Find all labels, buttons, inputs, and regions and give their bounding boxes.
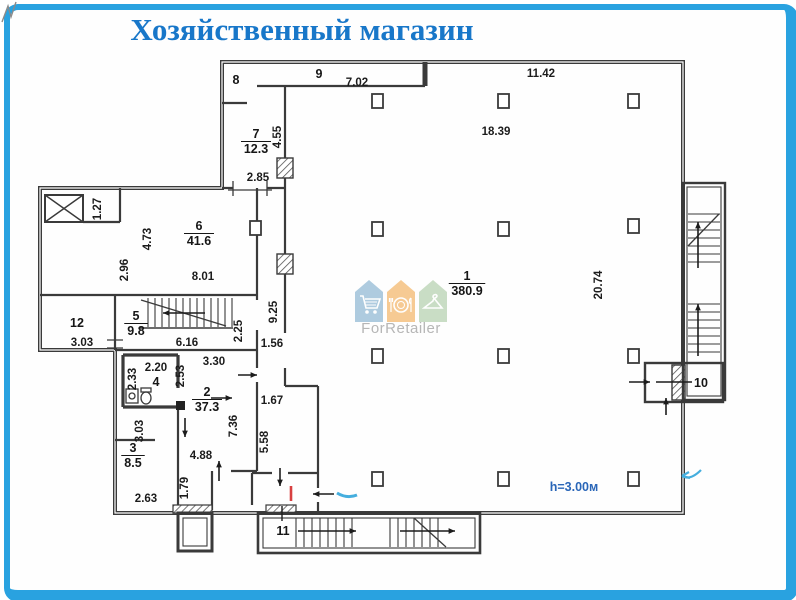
dimension-label: 4.73 <box>142 228 154 250</box>
dining-icon <box>387 280 415 322</box>
dimension-label: 1.67 <box>261 395 283 407</box>
direction-arrows <box>163 222 701 534</box>
direction-arrow <box>182 418 188 437</box>
dimension-label: 4.55 <box>272 125 284 148</box>
room-number: 8 <box>233 73 240 87</box>
dimension-label: 1.79 <box>179 477 191 499</box>
room-area: 9.8 <box>127 324 144 338</box>
room-area: 41.6 <box>187 234 211 248</box>
dimension-label: 3.30 <box>203 356 225 368</box>
dimension-label: 2.96 <box>119 259 131 281</box>
direction-arrow <box>313 491 334 497</box>
dimension-label: 1.27 <box>92 198 104 220</box>
direction-arrow <box>400 528 455 534</box>
staircase-right <box>683 183 725 400</box>
dimension-label: 2.85 <box>247 172 270 184</box>
dimension-label: 20.74 <box>593 270 605 299</box>
dimension-label: 5.58 <box>259 430 271 453</box>
pencil-scribble <box>2 2 16 22</box>
column <box>372 472 383 486</box>
cart-icon <box>355 280 383 322</box>
dimension-label: 7.36 <box>228 415 240 437</box>
dimension-label: 3.03 <box>71 337 93 349</box>
room-number: 5 <box>133 309 140 323</box>
room-area: 380.9 <box>451 284 482 298</box>
room-number: 9 <box>316 67 323 81</box>
column <box>372 94 383 108</box>
dimension-label: 18.39 <box>482 126 511 138</box>
page-title: Хозяйственный магазин <box>130 12 473 47</box>
direction-arrow <box>163 310 205 316</box>
floor-plan-svg: Хозяйственный магазин <box>0 0 796 600</box>
direction-arrow <box>277 468 283 486</box>
room-area: 12.3 <box>244 142 268 156</box>
column <box>250 221 261 235</box>
entrance-porch <box>178 513 212 551</box>
stair-treads <box>148 214 720 547</box>
room-area: 37.3 <box>195 400 219 414</box>
dimension-label: 6.16 <box>176 337 198 349</box>
leader-lines <box>282 382 692 521</box>
room-number: 10 <box>694 376 708 390</box>
room-number: 12 <box>70 316 84 330</box>
dimension-label: 7.02 <box>346 77 368 89</box>
column <box>628 472 639 486</box>
dimension-label: 3.03 <box>134 420 146 442</box>
column <box>372 222 383 236</box>
direction-arrow <box>298 528 356 534</box>
column <box>372 349 383 363</box>
direction-arrow <box>663 398 669 415</box>
dimension-label: 2.63 <box>135 493 157 505</box>
column <box>498 349 509 363</box>
dimension-label: 4.88 <box>190 450 213 462</box>
column <box>628 219 639 233</box>
column <box>498 222 509 236</box>
room-number: 2 <box>204 385 211 399</box>
dimension-label: 8.01 <box>192 271 215 283</box>
forretailer-watermark: ForRetailer <box>355 280 447 337</box>
ceiling-height-note: h=3.00м <box>550 480 599 494</box>
direction-arrow <box>238 372 257 378</box>
direction-arrow <box>216 461 222 481</box>
hanger-icon <box>419 280 447 322</box>
staircase-room5 <box>140 300 233 328</box>
direction-arrow <box>629 379 650 385</box>
room-area: 8.5 <box>124 456 141 470</box>
wall-piers <box>277 158 685 400</box>
direction-arrow <box>695 222 701 268</box>
room-number: 11 <box>276 524 289 538</box>
column <box>628 94 639 108</box>
dimension-label: 2.33 <box>127 368 139 390</box>
brand-text: ForRetailer <box>361 320 441 337</box>
shaft-x-box <box>45 195 83 222</box>
column <box>628 349 639 363</box>
room-number: 1 <box>464 269 471 283</box>
dimension-label: 2.20 <box>145 362 167 374</box>
dimension-label: 9.25 <box>268 300 280 323</box>
room-number: 7 <box>253 127 260 141</box>
screenshot-stage: Хозяйственный магазин <box>0 0 796 600</box>
dimension-label: 11.42 <box>527 68 555 80</box>
dimension-label: 2.25 <box>233 319 245 342</box>
room-number: 4 <box>153 375 160 389</box>
dimension-label: 2.53 <box>175 365 187 387</box>
column <box>498 472 509 486</box>
blue-dash-mark <box>337 493 357 497</box>
column <box>498 94 509 108</box>
room-number: 6 <box>196 219 203 233</box>
staircase-bottom <box>258 513 480 553</box>
dimension-label: 1.56 <box>261 338 283 350</box>
